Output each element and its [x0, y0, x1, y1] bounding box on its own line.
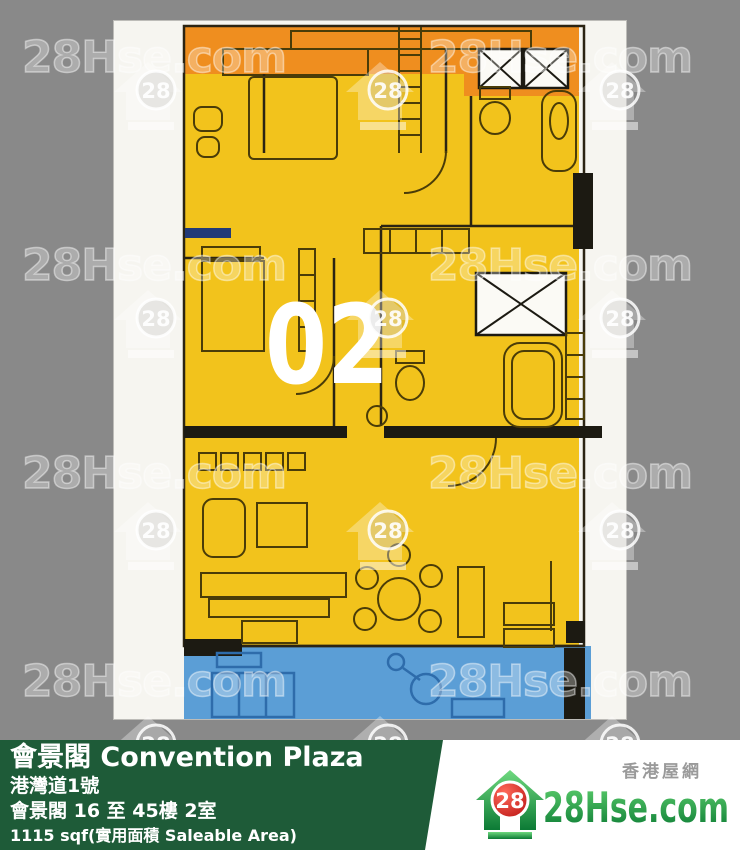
logo-site-name-cn: 香港屋網 [622, 757, 702, 782]
unit-number-label: 02 [265, 281, 389, 409]
building-address: 港灣道1號 [10, 774, 364, 799]
info-bar-text: 會景閣 Convention Plaza 港灣道1號 會景閣 16 至 45樓 … [10, 741, 364, 848]
logo-badge: 28 [495, 789, 524, 813]
building-title: 會景閣 Convention Plaza [10, 741, 364, 774]
adjacent-unit-bottom [184, 646, 591, 719]
logo-site-name-text: 28Hse.com [543, 783, 729, 832]
navy-wall [185, 228, 231, 238]
building-area: 1115 sqf(實用面積 Saleable Area) [10, 824, 364, 848]
floor-plan-image: 02 [113, 20, 627, 720]
logo-house-icon[interactable]: 28 [473, 768, 547, 842]
building-floors-unit: 會景閣 16 至 45樓 2室 [10, 799, 364, 824]
floor-plan-drawing: 02 [114, 21, 626, 719]
logo-site-name[interactable]: 28Hse.com [541, 782, 733, 834]
page: 02 28Hse.com28Hse.com28Hse.com28Hse.com2… [0, 0, 740, 850]
